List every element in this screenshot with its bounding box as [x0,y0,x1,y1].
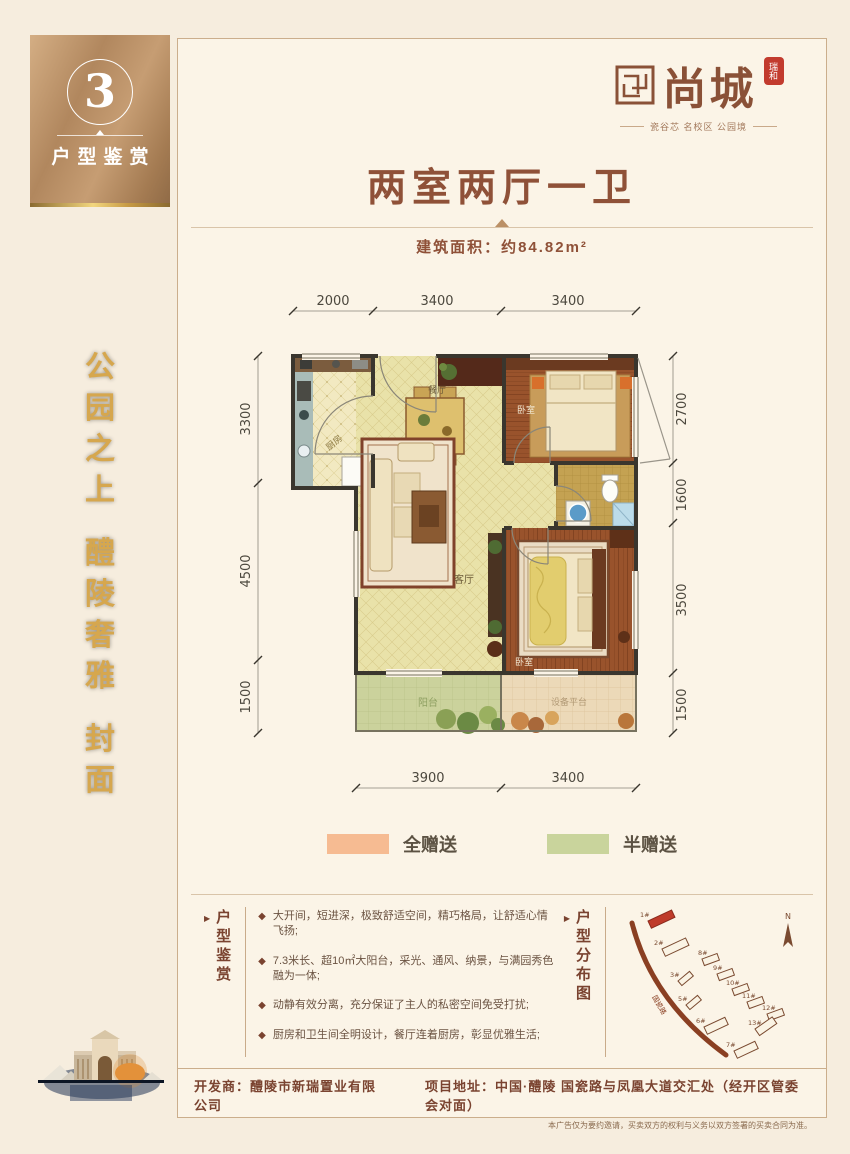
svg-text:10#: 10# [726,979,740,987]
vertical-divider [605,907,606,1057]
diamond-bullet-icon: ◆ [258,954,266,984]
dim-top-3: 3400 [551,294,584,309]
dining-label: 餐厅 [428,384,446,396]
sidebar-divider [57,135,143,136]
diamond-bullet-icon: ◆ [258,1028,266,1043]
dim-bottom-1: 3900 [411,771,444,786]
svg-text:8#: 8# [698,949,708,957]
dim-top-2: 3400 [420,294,453,309]
svg-text:9#: 9# [713,964,723,972]
svg-text:11#: 11# [742,992,756,1000]
feature-item: ◆动静有效分离，充分保证了主人的私密空间免受打扰; [258,998,558,1013]
slogan-vertical-text: 公 园 之 上 醴 陵 奢 雅 封 面 [30,353,170,796]
sidebar-section-label: 户型鉴赏 [30,142,170,169]
floorplan: 2000 3400 3400 3300 4500 1500 2700 1600 … [236,291,776,806]
half-gift-swatch [547,834,609,854]
living-label: 客厅 [454,573,474,586]
footer-info: 开发商：醴陵市新瑞置业有限公司 项目地址：中国·醴陵 国瓷路与凤凰大道交汇处（经… [194,1076,812,1114]
sidebar-body: 公 园 之 上 醴 陵 奢 雅 封 面 [30,207,170,1127]
svg-text:3#: 3# [670,971,680,979]
features-section: ▶ 户型鉴赏 ◆大开间，短进深，极致舒适空间，精巧格局，让舒适心情飞扬; ◆7.… [204,905,810,1067]
svg-text:7#: 7# [726,1041,736,1049]
legend-item-full: 全赠送 [327,831,457,857]
feature-list: ◆大开间，短进深，极致舒适空间，精巧格局，让舒适心情飞扬; ◆7.3米长、超10… [258,909,558,1043]
sidebar-header: 3 户型鉴赏 [30,35,170,207]
developer-text: 开发商：醴陵市新瑞置业有限公司 [194,1076,383,1114]
svg-text:5#: 5# [678,995,688,1003]
bedroom2-label: 卧室 [515,656,533,668]
full-gift-swatch [327,834,389,854]
equipment-label: 设备平台 [551,696,587,708]
svg-text:6#: 6# [696,1017,706,1025]
feature-item: ◆大开间，短进深，极致舒适空间，精巧格局，让舒适心情飞扬; [258,909,558,939]
feature-item: ◆7.3米长、超10㎡大阳台，采光、通风、纳景，与满园秀色融为一体; [258,954,558,984]
dim-left-1: 3300 [239,402,254,435]
section-divider [191,894,813,895]
sitemap-label: 户型分布图 [572,909,593,1004]
dim-bottom-2: 3400 [551,771,584,786]
brand-logo: 尚城 瑞和 瓷谷芯 名校区 公园境 [591,53,806,133]
address-text: 项目地址：中国·醴陵 国瓷路与凤凰大道交汇处（经开区管委会对面） [425,1076,812,1114]
arrow-right-icon: ▶ [564,914,570,923]
dim-right-3: 3500 [675,583,690,616]
section-number-badge: 3 [67,59,133,125]
dim-right-4: 1500 [675,688,690,721]
dim-left-2: 4500 [239,554,254,587]
sitemap: 国瓷路 1# 2# 3 [618,905,810,1063]
building-illustration [30,1003,170,1121]
logo-seal: 瑞和 [764,57,784,85]
dim-left-3: 1500 [239,680,254,713]
legend-item-half: 半赠送 [547,831,677,857]
sitemap-label-wrap: ▶ 户型分布图 [564,909,593,1004]
dim-top-1: 2000 [316,294,349,309]
svg-text:2#: 2# [654,939,664,947]
logo-maze-icon [614,64,656,106]
building-area-text: 建筑面积：约84.82m² [178,236,826,257]
features-label-wrap: ▶ 户型鉴赏 [204,909,233,985]
page-title: 两室两厅一卫 [178,157,826,213]
sofa-set [362,439,454,587]
half-gift-label: 半赠送 [623,831,677,857]
feature-item: ◆厨房和卫生间全明设计，餐厅连着厨房，彰显优雅生活; [258,1028,558,1043]
triangle-ornament-icon [96,130,104,135]
full-gift-label: 全赠送 [403,831,457,857]
svg-text:12#: 12# [762,1004,776,1012]
legend: 全赠送 半赠送 [178,831,826,857]
svg-text:N: N [785,912,791,921]
title-divider [191,227,813,228]
logo-tagline: 瓷谷芯 名校区 公园境 [591,120,806,133]
disclaimer-text: 本广告仅为要约邀请，买卖双方的权利与义务以双方签署的买卖合同为准。 [194,1120,812,1131]
sidebar: 3 户型鉴赏 公 园 之 上 醴 陵 奢 雅 封 面 [30,35,170,1127]
bedroom1-label: 卧室 [517,404,535,416]
balcony-label: 阳台 [418,696,438,709]
svg-text:1#: 1# [640,911,650,919]
logo-name: 尚城 [663,53,757,117]
footer: 开发商：醴陵市新瑞置业有限公司 项目地址：中国·醴陵 国瓷路与凤凰大道交汇处（经… [178,1068,826,1117]
svg-text:13#: 13# [748,1019,762,1027]
diamond-bullet-icon: ◆ [258,998,266,1013]
main-panel: 尚城 瑞和 瓷谷芯 名校区 公园境 两室两厅一卫 建筑面积：约84.82m² [177,38,827,1118]
vertical-divider [245,907,246,1057]
features-label: 户型鉴赏 [212,909,233,985]
triangle-ornament-icon [495,219,509,227]
logo-row: 尚城 瑞和 [591,53,806,117]
arrow-right-icon: ▶ [204,914,210,923]
north-arrow-icon: N [783,912,793,947]
dim-right-2: 1600 [675,478,690,511]
dim-right-1: 2700 [675,392,690,425]
diamond-bullet-icon: ◆ [258,909,266,939]
building-1-highlighted [648,910,675,928]
section-number: 3 [84,64,116,118]
